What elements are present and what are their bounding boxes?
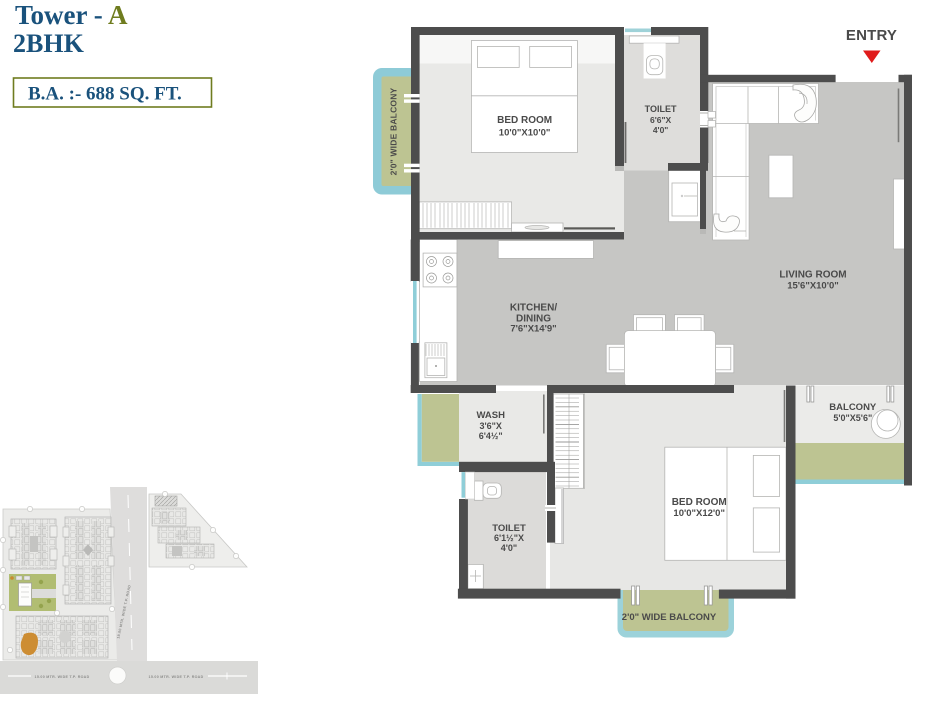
svg-text:2BHK: 2BHK [13,29,85,58]
svg-text:B.A. :- 688 SQ. FT.: B.A. :- 688 SQ. FT. [28,84,182,105]
svg-text:BED ROOM: BED ROOM [497,115,552,126]
svg-text:WASH: WASH [476,410,505,421]
svg-text:2'0" WIDE BALCONY: 2'0" WIDE BALCONY [389,87,399,175]
svg-text:10'0"X12'0": 10'0"X12'0" [673,508,725,519]
svg-text:15.00 MTR. WIDE T.P. ROAD: 15.00 MTR. WIDE T.P. ROAD [35,675,90,679]
svg-text:TOILET: TOILET [645,104,677,114]
svg-text:6'1½"X: 6'1½"X [494,533,524,543]
svg-text:BALCONY: BALCONY [829,402,877,413]
svg-text:15'6"X10'0": 15'6"X10'0" [787,281,839,292]
svg-text:7'6"X14'9": 7'6"X14'9" [510,324,556,335]
svg-text:4'0": 4'0" [501,543,517,553]
svg-text:2'0" WIDE BALCONY: 2'0" WIDE BALCONY [622,612,717,623]
svg-text:15.00 MTR. WIDE T.P. ROAD: 15.00 MTR. WIDE T.P. ROAD [149,675,204,679]
svg-text:6'4½": 6'4½" [479,431,503,441]
svg-text:LIVING ROOM: LIVING ROOM [779,270,846,281]
svg-text:10'0"X10'0": 10'0"X10'0" [499,128,551,139]
svg-text:BED ROOM: BED ROOM [672,497,727,508]
svg-text:6'6"X: 6'6"X [650,115,672,125]
svg-text:ENTRY: ENTRY [846,27,897,44]
svg-text:3'6"X: 3'6"X [479,421,501,431]
svg-text:Tower - A: Tower - A [15,0,128,30]
svg-text:KITCHEN/: KITCHEN/ [510,303,557,314]
svg-text:4'0": 4'0" [653,125,669,135]
svg-text:5'0"X5'6": 5'0"X5'6" [833,413,872,423]
